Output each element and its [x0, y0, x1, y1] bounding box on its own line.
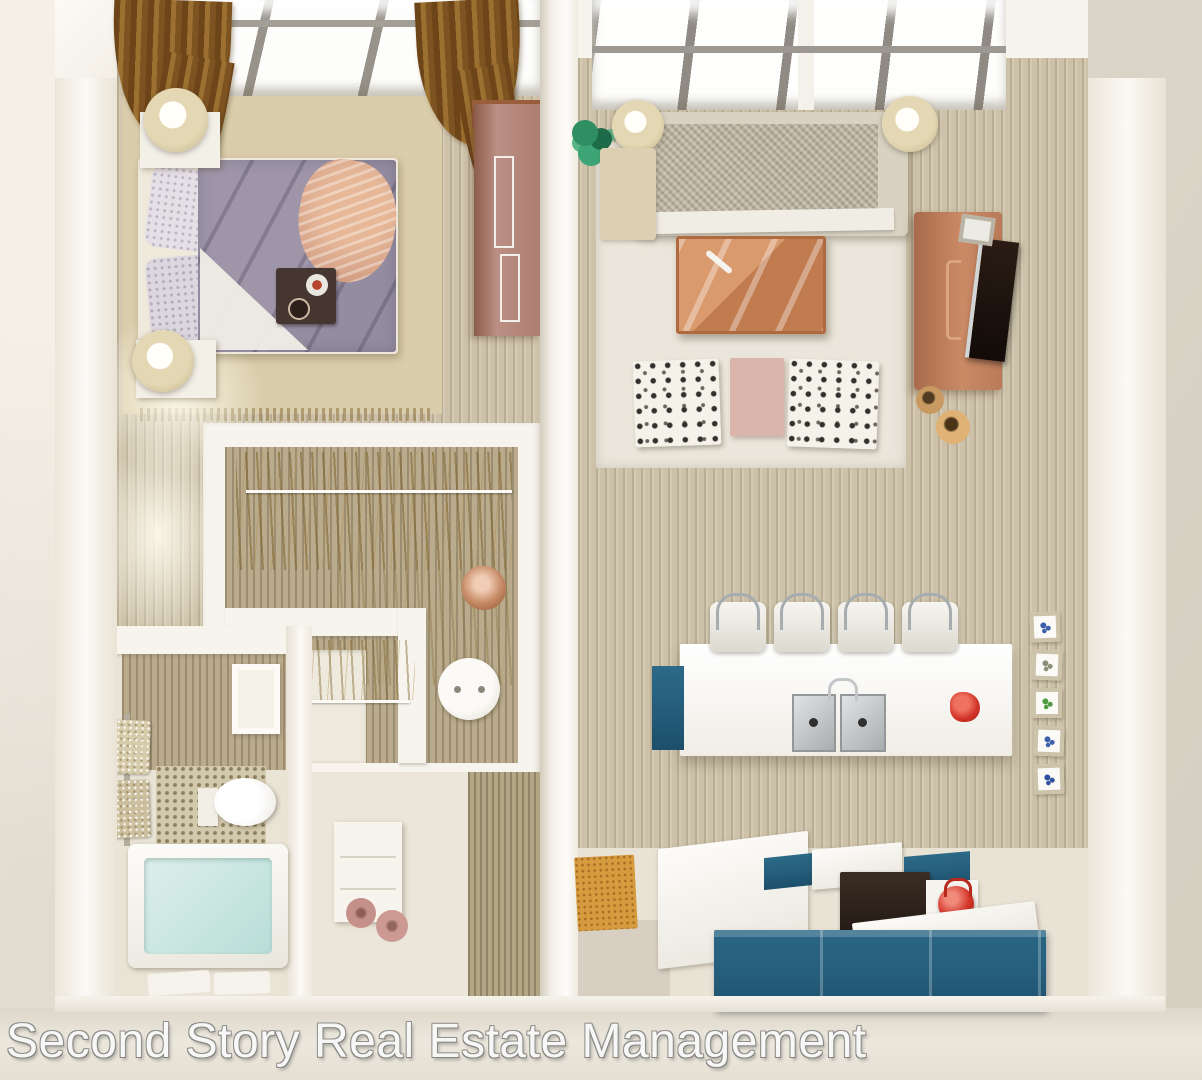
tile-pattern-icon — [1041, 771, 1058, 788]
wall-tile-art — [1031, 649, 1062, 680]
tile-pattern-icon — [1041, 733, 1058, 750]
drain-icon — [809, 718, 818, 727]
console-handle-icon — [946, 260, 961, 340]
stool-back-icon — [780, 593, 824, 630]
skylight-frame-bar — [592, 46, 1006, 53]
wall-tile-art — [1033, 763, 1064, 794]
decor-vase — [916, 386, 944, 414]
wardrobe — [474, 104, 540, 336]
pink-side-table — [730, 358, 784, 436]
bath-mat — [214, 971, 271, 995]
shelf-line — [340, 856, 396, 858]
wall-tile-art — [1029, 611, 1060, 642]
round-side-table — [438, 658, 500, 720]
shelf-line — [340, 888, 396, 890]
toilet — [214, 778, 276, 826]
wardrobe-handle-icon — [500, 254, 520, 322]
drain-icon — [858, 718, 867, 727]
floor-lamp-left — [612, 100, 664, 152]
red-decor-bowl — [950, 692, 980, 722]
floor-plan-rendering: Second Story Real Estate Management — [0, 0, 1202, 1080]
patterned-cube-chair — [633, 359, 722, 448]
remote-icon — [705, 249, 733, 274]
photo-frame — [958, 214, 996, 246]
bath-mat — [147, 970, 210, 996]
bar-stool — [838, 602, 894, 652]
exterior-wall-right — [1088, 78, 1166, 1010]
watermark-text: Second Story Real Estate Management — [6, 1014, 1196, 1069]
stool-back-icon — [908, 593, 952, 630]
hanging-clothes — [236, 452, 512, 570]
hanging-rod — [246, 490, 512, 493]
bathroom-wall — [286, 626, 312, 1010]
exterior-wall-bottom — [55, 996, 1165, 1012]
sofa-seat — [650, 124, 878, 212]
floor-lamp-right — [882, 96, 938, 152]
table-knob-icon — [454, 686, 461, 693]
hanging-clothes — [305, 640, 415, 700]
bar-stool — [902, 602, 958, 652]
side-table — [600, 148, 656, 240]
bathtub-water — [144, 858, 272, 954]
bar-stool — [774, 602, 830, 652]
exterior-wall-left — [55, 78, 117, 1010]
decor-vase — [936, 410, 970, 444]
copper-decor-ball — [462, 566, 506, 610]
unit-divider-wall — [540, 0, 578, 1010]
kitchen-sink — [792, 694, 836, 752]
wall-tile-art — [1032, 688, 1062, 718]
bathroom-mirror — [232, 664, 280, 734]
door-mat — [574, 854, 638, 931]
tile-pattern-icon — [1039, 695, 1055, 711]
copper-coffee-table — [676, 236, 826, 334]
skylight-beam — [798, 0, 814, 110]
kitchen-sink — [840, 694, 886, 752]
wall-tile-art — [1033, 725, 1064, 756]
stool-back-icon — [716, 593, 760, 630]
rolled-towel — [376, 910, 408, 942]
wood-panel-wall — [468, 772, 540, 1010]
hanging-rod — [310, 700, 410, 703]
bar-stool — [710, 602, 766, 652]
potted-plant-icon — [572, 120, 598, 146]
cup-icon — [288, 298, 310, 320]
sofa-trim — [650, 208, 894, 234]
table-lamp-top — [144, 88, 208, 152]
faucet-icon — [828, 678, 858, 701]
stool-back-icon — [844, 593, 888, 630]
table-lamp-bottom — [132, 330, 194, 392]
table-knob-icon — [478, 686, 485, 693]
tile-pattern-icon — [1039, 657, 1056, 674]
island-teal-cabinet — [652, 666, 684, 750]
tile-pattern-icon — [1037, 619, 1054, 636]
rolled-towel — [346, 898, 376, 928]
kettle-handle-icon — [944, 878, 972, 897]
plate-icon — [306, 274, 328, 296]
patterned-cube-chair — [786, 358, 879, 449]
living-room-skylight-windows — [592, 0, 1006, 110]
breakfast-tray — [276, 268, 336, 324]
wardrobe-handle-icon — [494, 156, 514, 248]
